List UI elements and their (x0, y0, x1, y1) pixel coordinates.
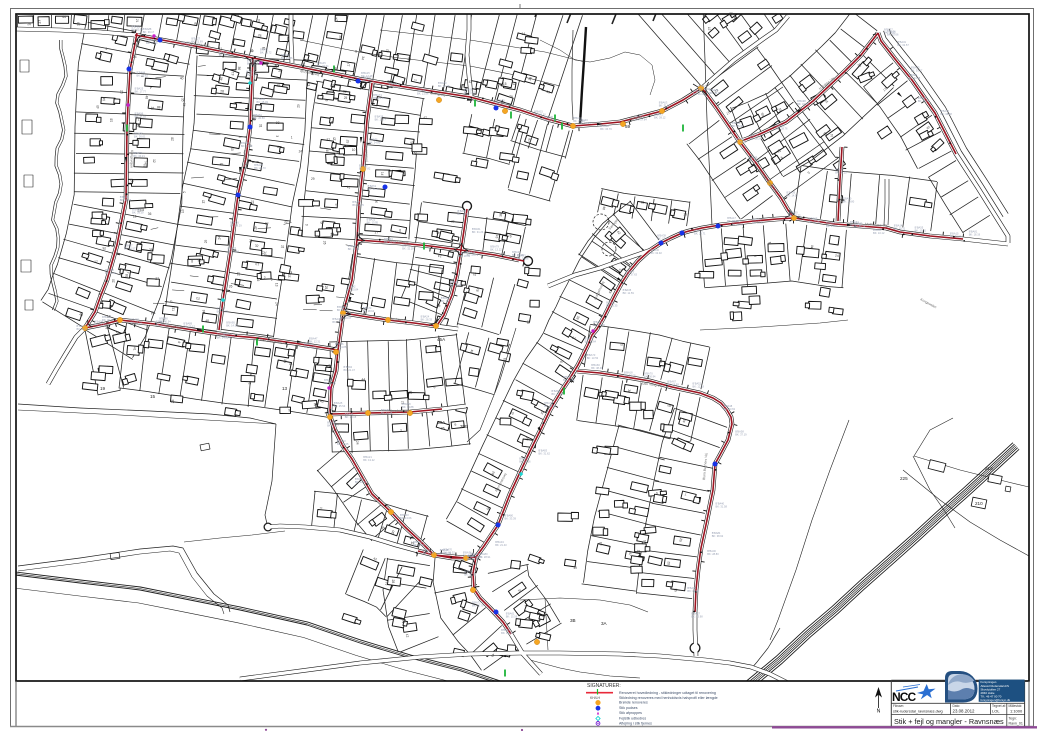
svg-text:18: 18 (348, 78, 352, 82)
svg-text:9: 9 (288, 408, 290, 412)
svg-text:25: 25 (250, 200, 254, 204)
svg-text:BK: 14.52: BK: 14.52 (787, 194, 799, 198)
svg-text:BK: 40.34: BK: 40.34 (854, 225, 866, 229)
svg-text:Sylows Alle: Sylows Alle (242, 150, 247, 167)
svg-text:11: 11 (640, 200, 644, 204)
svg-text:BK: 13.71: BK: 13.71 (423, 551, 435, 555)
svg-text:24: 24 (334, 17, 338, 21)
svg-text:36: 36 (248, 381, 252, 385)
svg-text:36: 36 (237, 67, 241, 71)
svg-text:45A: 45A (437, 337, 446, 342)
svg-text:15: 15 (332, 137, 336, 141)
svg-text:BK: 31.24: BK: 31.24 (472, 230, 484, 234)
svg-text:40: 40 (230, 147, 234, 151)
svg-text:BK: 28.75: BK: 28.75 (470, 555, 482, 559)
svg-text:33: 33 (409, 390, 413, 394)
svg-text:BK: 12.31: BK: 12.31 (309, 340, 321, 344)
svg-text:BK: 37.19: BK: 37.19 (735, 433, 747, 437)
svg-text:Tornevangsvej: Tornevangsvej (364, 140, 369, 162)
svg-text:21: 21 (289, 362, 293, 366)
svg-text:LOL: LOL (992, 709, 1000, 714)
svg-text:BK: 24.85: BK: 24.85 (335, 345, 347, 349)
svg-text:2: 2 (264, 276, 266, 280)
svg-text:48: 48 (144, 96, 148, 100)
svg-text:BK: 38.99: BK: 38.99 (732, 222, 744, 226)
svg-text:BK: 37.82: BK: 37.82 (359, 166, 371, 170)
svg-text:13: 13 (274, 283, 278, 287)
svg-text:33: 33 (284, 220, 288, 224)
svg-text:forsyningen@forsyn.dk: forsyningen@forsyn.dk (981, 698, 1011, 702)
svg-text:BK: 13.22: BK: 13.22 (490, 247, 502, 251)
svg-text:210: 210 (975, 501, 983, 506)
svg-text:BK: 22.24: BK: 22.24 (563, 378, 575, 382)
svg-text:212: 212 (985, 466, 993, 471)
svg-text:43: 43 (410, 141, 414, 145)
svg-text:14: 14 (250, 49, 254, 53)
svg-text:BK: 11.77: BK: 11.77 (375, 117, 387, 121)
svg-text:20: 20 (111, 279, 115, 283)
svg-text:11: 11 (830, 134, 834, 138)
svg-text:9: 9 (325, 99, 329, 101)
svg-text:BK: 18.67: BK: 18.67 (340, 316, 352, 320)
svg-text:23: 23 (402, 620, 406, 624)
svg-text:30: 30 (130, 178, 134, 182)
svg-text:24: 24 (133, 55, 137, 59)
svg-text:BK: 39.39: BK: 39.39 (132, 211, 144, 215)
svg-text:BK: 12.18: BK: 12.18 (693, 385, 705, 389)
svg-text:43: 43 (320, 399, 324, 403)
svg-text:24: 24 (299, 149, 303, 153)
svg-text:37: 37 (683, 213, 687, 217)
svg-text:21: 21 (150, 107, 154, 111)
svg-text:BK: 32.25: BK: 32.25 (324, 381, 336, 385)
svg-text:Stikledning renoveres med henh: Stikledning renoveres med henholdsvis ha… (619, 696, 718, 700)
svg-text:Tegnet af:: Tegnet af: (992, 704, 1006, 708)
svg-text:BK: 22.31: BK: 22.31 (464, 572, 476, 576)
svg-text:43: 43 (599, 542, 603, 546)
svg-text:BK: 13.95: BK: 13.95 (367, 221, 379, 225)
svg-text:8: 8 (191, 259, 193, 263)
svg-text:24: 24 (355, 441, 359, 445)
svg-text:BK: 33.98: BK: 33.98 (691, 614, 703, 618)
svg-text:37: 37 (327, 138, 331, 142)
svg-text:28: 28 (171, 137, 175, 141)
svg-text:23.08.2012: 23.08.2012 (953, 709, 976, 714)
svg-text:13: 13 (255, 262, 259, 266)
svg-text:44: 44 (62, 15, 66, 19)
svg-text:3B: 3B (570, 618, 576, 623)
svg-text:3: 3 (275, 135, 279, 137)
svg-text:43: 43 (276, 84, 280, 88)
svg-text:35: 35 (197, 258, 201, 262)
svg-text:40: 40 (180, 76, 184, 80)
svg-text:BK: 38.40: BK: 38.40 (591, 366, 603, 370)
svg-text:45: 45 (436, 230, 440, 235)
svg-text:BK: 21.41: BK: 21.41 (105, 271, 117, 275)
svg-text:21: 21 (637, 550, 641, 554)
svg-text:N: N (877, 709, 881, 715)
svg-text:BK: 10.66: BK: 10.66 (887, 33, 899, 37)
svg-text:12: 12 (133, 214, 137, 218)
svg-text:40: 40 (325, 149, 329, 153)
svg-text:15: 15 (674, 588, 678, 592)
svg-text:44: 44 (361, 377, 365, 381)
svg-text:BK: 28.38: BK: 28.38 (732, 124, 744, 128)
svg-text:5: 5 (182, 191, 186, 193)
svg-text:27: 27 (155, 277, 159, 281)
svg-text:4: 4 (169, 300, 173, 302)
svg-text:47: 47 (333, 428, 337, 432)
svg-text:BK: 39.17: BK: 39.17 (143, 30, 155, 34)
svg-text:39: 39 (125, 274, 129, 278)
svg-text:BK: 13.79: BK: 13.79 (241, 144, 253, 148)
svg-text:38: 38 (333, 67, 337, 71)
svg-text:Aflejring i stik fjernes: Aflejring i stik fjernes (619, 721, 652, 725)
svg-text:6: 6 (399, 228, 401, 232)
svg-text:45: 45 (183, 103, 187, 107)
svg-text:BK: 13.64: BK: 13.64 (585, 340, 597, 344)
svg-text:BK: 32.18: BK: 32.18 (402, 247, 414, 251)
svg-text:BK: 13.92: BK: 13.92 (94, 323, 106, 327)
svg-text:26: 26 (120, 90, 124, 94)
svg-text:25: 25 (345, 139, 349, 143)
svg-text:Stik + fejl og mangler - Ravns: Stik + fejl og mangler - Ravnsnæs (894, 717, 1004, 726)
svg-text:36: 36 (499, 213, 503, 217)
svg-text:Renoveret hovedledning - stikl: Renoveret hovedledning - stikledninger u… (619, 691, 716, 695)
svg-text:BK: 24.48: BK: 24.48 (909, 76, 921, 80)
svg-text:24: 24 (275, 302, 279, 306)
svg-text:BK: 23.85: BK: 23.85 (217, 309, 229, 313)
svg-text:10: 10 (136, 123, 140, 127)
svg-text:10: 10 (352, 148, 356, 152)
svg-text:BK: 40.94: BK: 40.94 (699, 87, 711, 91)
svg-text:BK: 38.76: BK: 38.76 (776, 127, 788, 131)
svg-text:40: 40 (810, 245, 815, 249)
svg-text:BK: 16.94: BK: 16.94 (120, 198, 132, 202)
svg-text:BK: 30.21: BK: 30.21 (133, 154, 145, 158)
svg-text:BK: 30.32: BK: 30.32 (709, 91, 721, 95)
svg-text:BK: 30.59: BK: 30.59 (223, 335, 235, 339)
svg-text:BK: 37.85: BK: 37.85 (593, 323, 605, 327)
svg-text:25: 25 (204, 240, 208, 244)
svg-text:42: 42 (253, 226, 257, 230)
svg-text:BK: 15.59: BK: 15.59 (506, 615, 518, 619)
svg-text:42: 42 (335, 151, 339, 155)
svg-text:14: 14 (263, 251, 267, 255)
svg-text:1: 1 (291, 136, 293, 140)
svg-text:27: 27 (265, 222, 269, 226)
svg-text:Ravn_01: Ravn_01 (1009, 722, 1023, 726)
svg-text:BK: 39.46: BK: 39.46 (219, 53, 231, 57)
svg-text:BK: 15.72: BK: 15.72 (260, 50, 272, 54)
svg-text:BK: 17.77: BK: 17.77 (135, 89, 147, 93)
svg-text:BK: 32.43: BK: 32.43 (450, 283, 462, 287)
svg-text:34: 34 (249, 239, 253, 243)
svg-text:BK: 11.43: BK: 11.43 (246, 73, 258, 77)
svg-text:43: 43 (277, 145, 281, 149)
svg-text:BK: 30.10: BK: 30.10 (496, 102, 508, 106)
svg-text:BK: 24.86: BK: 24.86 (517, 256, 529, 260)
svg-text:31: 31 (171, 307, 175, 311)
svg-text:36: 36 (148, 212, 152, 216)
svg-text:20: 20 (236, 272, 240, 276)
svg-text:21: 21 (536, 612, 540, 616)
svg-text:15: 15 (503, 82, 507, 86)
svg-text:BK: 10.12: BK: 10.12 (873, 231, 885, 235)
svg-text:BK: 20.57: BK: 20.57 (124, 247, 136, 251)
svg-text:25: 25 (324, 286, 328, 290)
svg-text:31: 31 (259, 124, 263, 128)
svg-text:BK: 33.84: BK: 33.84 (132, 27, 144, 31)
svg-text:BK: 33.26: BK: 33.26 (337, 308, 349, 312)
svg-text:9: 9 (656, 492, 658, 496)
svg-text:BK: 22.79: BK: 22.79 (472, 604, 484, 608)
svg-text:BK: 29.65: BK: 29.65 (337, 442, 349, 446)
svg-text:4: 4 (643, 540, 647, 542)
svg-text:59: 59 (625, 124, 631, 129)
svg-text:BK: 12.87: BK: 12.87 (752, 221, 764, 225)
svg-text:BK: 21.11: BK: 21.11 (77, 327, 89, 331)
svg-text:27: 27 (38, 20, 42, 24)
svg-text:BK: 40.86: BK: 40.86 (413, 543, 425, 547)
svg-text:9: 9 (170, 262, 172, 266)
svg-text:28: 28 (391, 580, 395, 584)
svg-text:BK: 18.64: BK: 18.64 (146, 41, 158, 45)
svg-text:BK: 31.58: BK: 31.58 (716, 505, 728, 509)
svg-text:BK: 13.22: BK: 13.22 (363, 458, 375, 462)
svg-text:BK: 35.40: BK: 35.40 (809, 219, 821, 223)
svg-text:BK: 25.54: BK: 25.54 (334, 404, 346, 408)
svg-text:45: 45 (96, 105, 100, 109)
svg-text:BK: 19.86: BK: 19.86 (281, 56, 293, 60)
svg-text:31: 31 (281, 245, 285, 249)
svg-text:NCC: NCC (892, 690, 917, 704)
svg-text:BK: 28.33: BK: 28.33 (421, 318, 433, 322)
svg-text:BK: 30.53: BK: 30.53 (440, 551, 452, 555)
svg-text:48: 48 (205, 319, 209, 323)
svg-text:BK: 13.66: BK: 13.66 (400, 516, 412, 520)
svg-text:32: 32 (255, 244, 259, 248)
svg-text:35: 35 (503, 358, 507, 362)
svg-text:18: 18 (110, 118, 114, 122)
svg-text:BK: 38.88: BK: 38.88 (940, 112, 952, 116)
svg-text:29: 29 (311, 177, 315, 181)
svg-text:BK: 28.80: BK: 28.80 (707, 552, 719, 556)
svg-text:SIGNATURER:: SIGNATURER: (587, 683, 621, 689)
svg-text:BK: 19.63: BK: 19.63 (687, 589, 699, 593)
svg-text:BK: 18.19: BK: 18.19 (969, 232, 981, 236)
svg-text:10: 10 (332, 85, 336, 89)
svg-text:46: 46 (220, 77, 224, 81)
svg-text:Brønde renoveres: Brønde renoveres (619, 701, 648, 705)
svg-text:BK: 29.71: BK: 29.71 (694, 231, 706, 235)
svg-text:BK: 11.35: BK: 11.35 (606, 304, 618, 308)
svg-text:KH/LH: KH/LH (590, 696, 601, 700)
svg-text:13: 13 (282, 386, 288, 391)
svg-text:BK: 21.16: BK: 21.16 (135, 115, 147, 119)
svg-text:BK: 19.52: BK: 19.52 (247, 62, 259, 66)
svg-text:22: 22 (473, 272, 477, 276)
svg-text:BK: 33.25: BK: 33.25 (130, 320, 142, 324)
svg-text:17: 17 (94, 260, 98, 264)
svg-text:BK: 35.84: BK: 35.84 (347, 288, 359, 292)
svg-text:48: 48 (157, 105, 161, 109)
svg-text:BK: 12.83: BK: 12.83 (355, 480, 367, 484)
svg-text:BK: 37.34: BK: 37.34 (317, 64, 329, 68)
svg-text:BK: 29.25: BK: 29.25 (348, 247, 360, 251)
svg-text:19: 19 (573, 566, 577, 570)
svg-text:BK: 19.31: BK: 19.31 (894, 227, 906, 231)
svg-text:14: 14 (380, 172, 384, 176)
svg-text:BK: 34.75: BK: 34.75 (797, 102, 809, 106)
svg-text:16: 16 (202, 309, 206, 313)
svg-text:29: 29 (150, 311, 154, 315)
svg-text:36: 36 (105, 326, 109, 330)
svg-text:BK: 38.68: BK: 38.68 (544, 404, 556, 408)
svg-text:BK: 21.56: BK: 21.56 (417, 92, 429, 96)
svg-text:BK: 37.63: BK: 37.63 (626, 272, 638, 276)
svg-text:BK: 25.62: BK: 25.62 (137, 74, 149, 78)
svg-text:47: 47 (423, 116, 427, 120)
svg-text:BK: 33.55: BK: 33.55 (544, 118, 556, 122)
svg-text:Kongevejen: Kongevejen (129, 150, 134, 168)
svg-text:BK: 25.71: BK: 25.71 (467, 253, 479, 257)
svg-text:34: 34 (257, 19, 261, 23)
svg-text:BK: 38.36: BK: 38.36 (368, 187, 380, 191)
svg-text:BK: 15.79: BK: 15.79 (600, 127, 612, 131)
svg-text:8: 8 (256, 279, 260, 281)
svg-text:stik-rudersdal_ravnsnæs.dwg: stik-rudersdal_ravnsnæs.dwg (893, 710, 943, 714)
svg-text:Fejlstik udbedres: Fejlstik udbedres (619, 717, 646, 721)
svg-text:BK: 18.64: BK: 18.64 (363, 309, 375, 313)
svg-text:Tegn:: Tegn: (1009, 717, 1017, 721)
svg-text:12: 12 (733, 17, 737, 21)
svg-text:Målestok:: Målestok: (1009, 704, 1023, 708)
svg-text:24: 24 (437, 254, 441, 259)
svg-text:28: 28 (171, 399, 175, 403)
svg-text:39: 39 (149, 248, 153, 252)
svg-text:5: 5 (106, 47, 108, 51)
svg-text:BK: 32.57: BK: 32.57 (897, 43, 909, 47)
svg-text:BK: 23.71: BK: 23.71 (363, 79, 375, 83)
svg-text:BK: 36.25: BK: 36.25 (835, 170, 847, 174)
svg-text:BK: 39.12: BK: 39.12 (654, 116, 666, 120)
svg-text:38A: 38A (437, 420, 446, 425)
svg-text:42: 42 (274, 65, 278, 69)
svg-text:BK: 33.39: BK: 33.39 (505, 517, 517, 521)
svg-text:15: 15 (495, 234, 499, 238)
svg-text:24: 24 (218, 236, 222, 240)
svg-text:BK: 38.72: BK: 38.72 (789, 214, 801, 218)
svg-text:17: 17 (144, 161, 148, 165)
svg-text:17: 17 (329, 121, 333, 125)
svg-text:34: 34 (346, 185, 350, 189)
svg-text:BK: 13.24: BK: 13.24 (657, 237, 669, 241)
svg-text:39: 39 (314, 403, 318, 407)
svg-text:31: 31 (271, 89, 275, 93)
svg-text:38B: 38B (460, 424, 468, 429)
svg-text:31: 31 (328, 364, 332, 368)
svg-text:39: 39 (283, 359, 288, 363)
svg-text:BK: 35.12: BK: 35.12 (184, 324, 196, 328)
svg-text:9: 9 (305, 224, 309, 226)
svg-text:5: 5 (355, 49, 357, 53)
svg-text:BK: 15.69: BK: 15.69 (918, 99, 930, 103)
svg-text:24: 24 (835, 254, 839, 259)
svg-text:BK: 24.65: BK: 24.65 (579, 121, 591, 125)
svg-text:BK: 30.94: BK: 30.94 (228, 250, 240, 254)
svg-text:BK: 18.43: BK: 18.43 (304, 345, 316, 349)
svg-text:15: 15 (202, 200, 206, 204)
svg-text:3A: 3A (601, 621, 608, 626)
svg-text:16: 16 (374, 199, 378, 203)
svg-text:14: 14 (522, 32, 526, 36)
svg-text:40: 40 (836, 198, 841, 202)
svg-text:21: 21 (135, 19, 139, 23)
svg-text:BK: 33.63: BK: 33.63 (724, 407, 736, 411)
svg-text:Stik afproppes: Stik afproppes (619, 711, 642, 715)
svg-text:13: 13 (307, 83, 311, 87)
svg-text:28: 28 (220, 90, 224, 94)
svg-text:Krogholmvej: Krogholmvej (390, 409, 409, 413)
svg-text:BK: 29.59: BK: 29.59 (667, 383, 679, 387)
svg-text:1:1000: 1:1000 (1010, 709, 1023, 714)
svg-text:BK: 18.24: BK: 18.24 (750, 136, 762, 140)
svg-text:BK: 32.60: BK: 32.60 (458, 212, 470, 216)
svg-text:41: 41 (132, 347, 136, 351)
svg-text:35: 35 (181, 98, 185, 102)
svg-text:27: 27 (413, 152, 417, 156)
svg-text:BK: 31.62: BK: 31.62 (539, 452, 551, 456)
svg-text:BK: 21.43: BK: 21.43 (495, 543, 507, 547)
svg-text:Stik pudses: Stik pudses (619, 706, 638, 710)
svg-text:3: 3 (400, 428, 402, 432)
svg-text:BK: 33.62: BK: 33.62 (441, 299, 453, 303)
svg-text:26: 26 (276, 121, 280, 125)
svg-text:Dato:: Dato: (953, 704, 961, 708)
svg-text:36: 36 (441, 426, 445, 430)
svg-text:BK: 21.56: BK: 21.56 (373, 96, 385, 100)
svg-text:BK: 13.53: BK: 13.53 (587, 356, 599, 360)
svg-text:BK: 18.29: BK: 18.29 (230, 223, 242, 227)
svg-text:29: 29 (297, 104, 301, 108)
svg-text:BK: 30.20: BK: 30.20 (102, 318, 114, 322)
svg-text:15: 15 (150, 394, 156, 399)
svg-text:28: 28 (330, 232, 334, 236)
svg-text:20: 20 (666, 561, 670, 565)
svg-text:39: 39 (288, 274, 292, 278)
svg-text:26: 26 (27, 22, 31, 26)
svg-text:BK: 24.26: BK: 24.26 (519, 459, 531, 463)
svg-text:6: 6 (271, 278, 273, 282)
svg-text:BK: 31.91: BK: 31.91 (659, 103, 671, 107)
svg-text:3: 3 (512, 83, 516, 85)
svg-text:45: 45 (102, 97, 106, 101)
svg-text:Filnavn:: Filnavn: (893, 704, 904, 708)
svg-text:47: 47 (450, 220, 454, 225)
svg-text:BK: 11.59: BK: 11.59 (623, 291, 635, 295)
svg-text:BK: 21.47: BK: 21.47 (344, 368, 356, 372)
svg-text:BK: 24.80: BK: 24.80 (843, 200, 855, 204)
svg-text:BK: 23.15: BK: 23.15 (345, 415, 357, 419)
svg-text:26: 26 (229, 284, 233, 288)
svg-text:BK: 30.94: BK: 30.94 (644, 375, 656, 379)
svg-text:12: 12 (152, 159, 156, 163)
svg-text:4: 4 (443, 318, 447, 320)
svg-text:25: 25 (729, 12, 733, 16)
svg-text:225: 225 (900, 476, 908, 481)
svg-text:BK: 18.52: BK: 18.52 (749, 159, 761, 163)
